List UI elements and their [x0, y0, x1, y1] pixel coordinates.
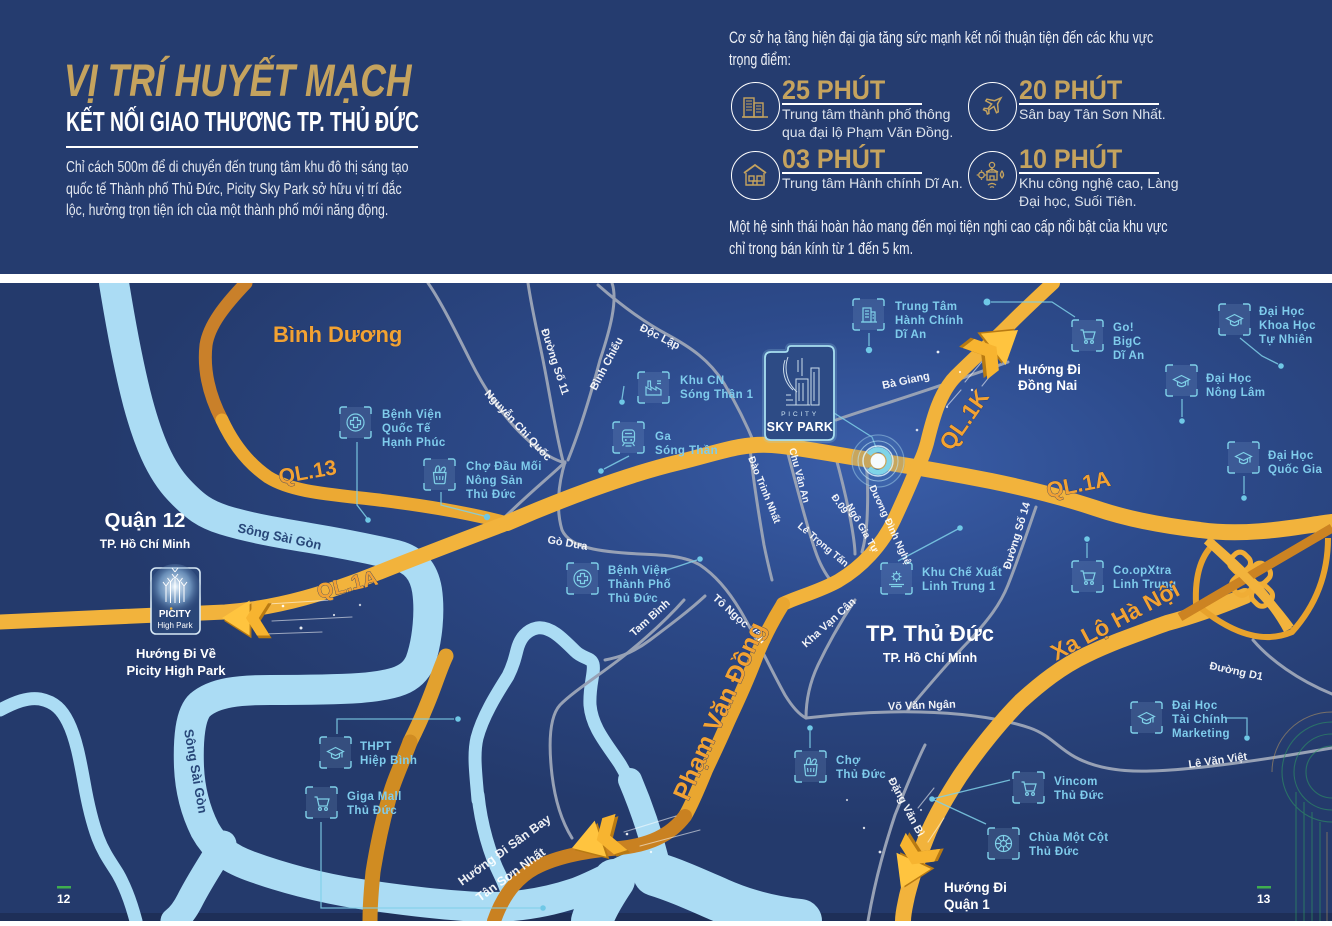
svg-text:Quận 12: Quận 12 [105, 509, 186, 532]
svg-text:SKY PARK: SKY PARK [767, 420, 834, 434]
svg-text:PICITY: PICITY [159, 609, 192, 620]
svg-text:13: 13 [1257, 892, 1271, 906]
svg-text:TP. Hồ Chí Minh: TP. Hồ Chí Minh [100, 537, 190, 551]
svg-text:Bình Dương: Bình Dương [273, 322, 402, 347]
svg-text:TP. Thủ Đức: TP. Thủ Đức [866, 621, 994, 646]
svg-text:Hướng Đi Về: Hướng Đi Về [136, 646, 216, 661]
svg-text:Võ Văn Ngân: Võ Văn Ngân [888, 699, 957, 713]
svg-text:Hướng Đi: Hướng Đi [1018, 362, 1081, 377]
svg-text:PICITY: PICITY [781, 411, 819, 418]
svg-text:Đồng Nai: Đồng Nai [1018, 378, 1077, 393]
svg-text:Picity High Park: Picity High Park [127, 663, 227, 678]
svg-text:Quận 1: Quận 1 [944, 897, 990, 912]
svg-text:TP. Hồ Chí Minh: TP. Hồ Chí Minh [883, 651, 977, 665]
svg-text:Hướng Đi: Hướng Đi [944, 880, 1007, 895]
svg-text:High Park: High Park [157, 621, 193, 630]
svg-text:12: 12 [57, 892, 71, 906]
